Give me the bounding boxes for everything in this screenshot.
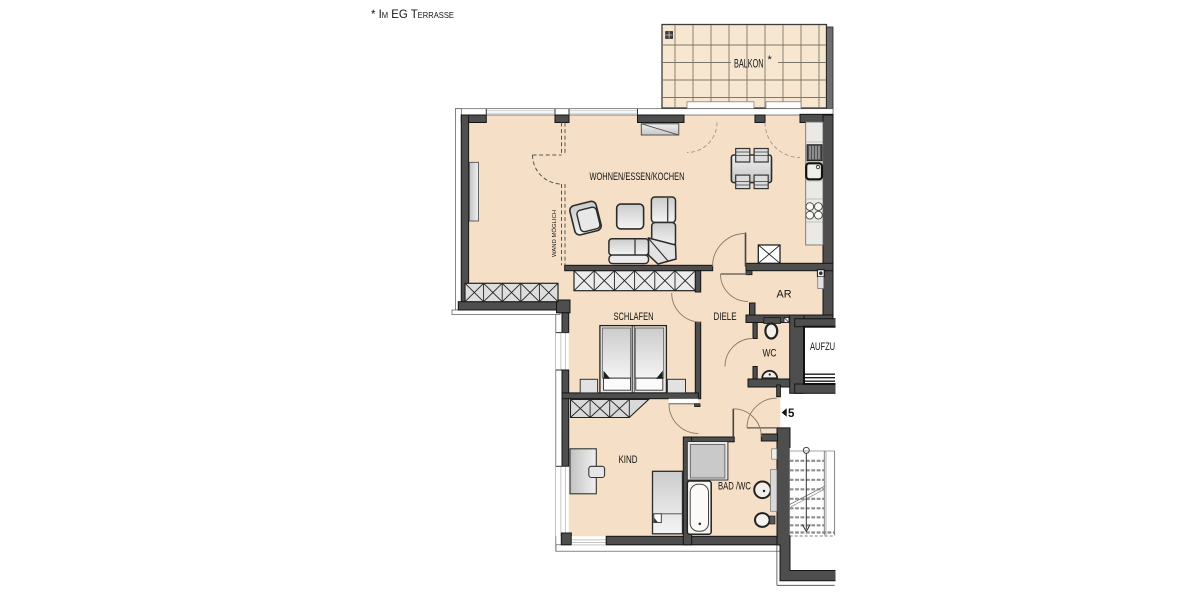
svg-text:5: 5 bbox=[788, 408, 795, 420]
svg-text:DIELE: DIELE bbox=[714, 311, 737, 323]
svg-text:BAD /WC: BAD /WC bbox=[718, 481, 751, 493]
svg-text:WOHNEN/ESSEN/KOCHEN: WOHNEN/ESSEN/KOCHEN bbox=[590, 171, 685, 183]
svg-text:AR: AR bbox=[777, 289, 792, 301]
svg-text:*: * bbox=[768, 54, 773, 66]
svg-text:SCHLAFEN: SCHLAFEN bbox=[614, 311, 654, 323]
svg-text:WC: WC bbox=[763, 348, 777, 360]
svg-text:KIND: KIND bbox=[619, 454, 638, 466]
svg-text:BALKON: BALKON bbox=[734, 57, 764, 71]
svg-text:* Im EG Terrasse: * Im EG Terrasse bbox=[371, 7, 454, 21]
svg-text:WAND MÖGLICH: WAND MÖGLICH bbox=[551, 210, 558, 257]
